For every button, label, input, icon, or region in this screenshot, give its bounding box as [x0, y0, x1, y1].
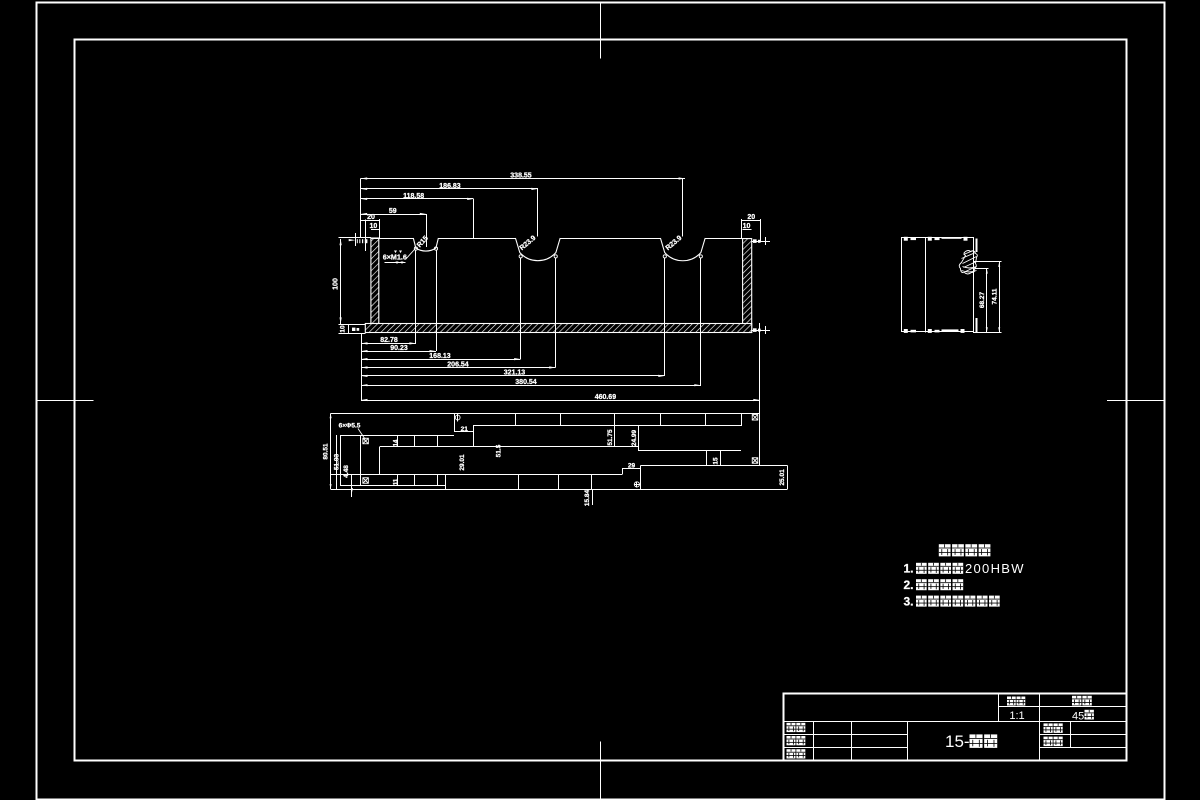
svg-text:80.51: 80.51 — [322, 443, 329, 460]
svg-text:29: 29 — [628, 462, 636, 469]
svg-text:200HBW: 200HBW — [965, 561, 1025, 576]
svg-text:90.23: 90.23 — [390, 345, 408, 352]
svg-text:14: 14 — [394, 439, 400, 446]
svg-text:460.69: 460.69 — [595, 394, 617, 401]
svg-text:51.03: 51.03 — [334, 453, 341, 470]
svg-text:74.11: 74.11 — [991, 288, 998, 304]
svg-text:1.: 1. — [903, 562, 913, 576]
svg-text:82.78: 82.78 — [380, 337, 398, 344]
svg-text:10: 10 — [340, 325, 347, 333]
svg-text:206.54: 206.54 — [447, 361, 469, 368]
svg-text:25.01: 25.01 — [779, 469, 786, 486]
svg-text:45: 45 — [1072, 711, 1084, 723]
svg-text:380.54: 380.54 — [515, 379, 537, 386]
svg-text:4.48: 4.48 — [343, 465, 350, 478]
svg-text:15.84: 15.84 — [584, 489, 591, 506]
svg-text:168.13: 168.13 — [429, 353, 451, 360]
svg-text:15: 15 — [713, 457, 720, 465]
svg-text:29.01: 29.01 — [459, 454, 466, 471]
svg-text:21: 21 — [461, 426, 469, 433]
svg-text:118.58: 118.58 — [403, 193, 424, 200]
svg-text:20: 20 — [747, 214, 755, 221]
svg-text:100: 100 — [333, 278, 340, 290]
svg-text:338.55: 338.55 — [510, 172, 532, 179]
svg-text:24.99: 24.99 — [631, 429, 638, 446]
svg-text:6×Φ5.5: 6×Φ5.5 — [339, 422, 361, 429]
svg-text:15-: 15- — [945, 732, 970, 751]
svg-text:68.27: 68.27 — [979, 291, 986, 308]
svg-text:321.13: 321.13 — [504, 370, 526, 377]
svg-text:51.75: 51.75 — [607, 429, 614, 446]
svg-text:10: 10 — [370, 223, 378, 230]
svg-text:186.83: 186.83 — [439, 183, 461, 190]
svg-text:3.: 3. — [903, 595, 913, 609]
svg-text:6×M1.6: 6×M1.6 — [383, 252, 407, 261]
svg-text:20: 20 — [367, 214, 375, 221]
svg-text:1:1: 1:1 — [1009, 710, 1024, 722]
svg-text:11: 11 — [394, 478, 400, 485]
svg-text:10: 10 — [743, 223, 751, 230]
svg-text:59: 59 — [389, 208, 397, 215]
svg-text:51.5: 51.5 — [496, 444, 503, 457]
svg-text:2.: 2. — [903, 578, 913, 592]
